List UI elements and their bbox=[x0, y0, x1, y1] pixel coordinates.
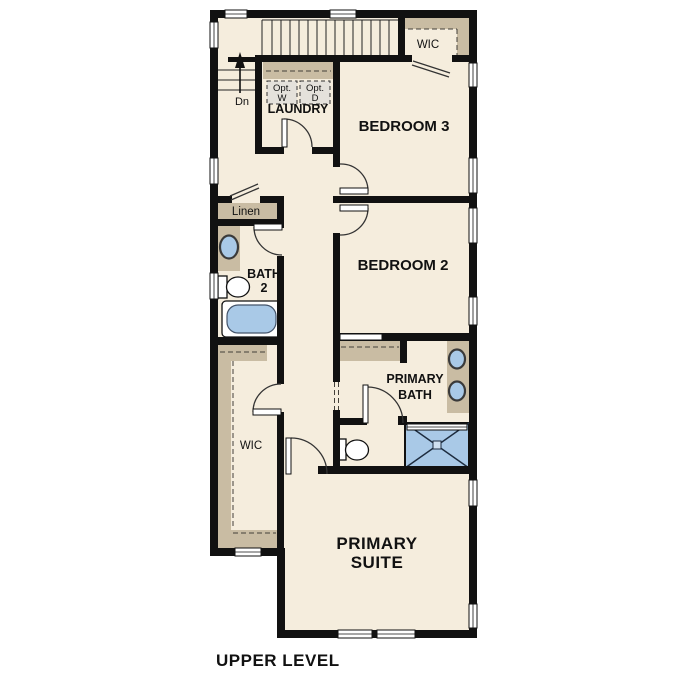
window bbox=[210, 22, 218, 48]
window bbox=[225, 10, 247, 18]
floor-plan-page: BEDROOM 3 BEDROOM 2 LAUNDRY Opt. W Opt. … bbox=[0, 0, 687, 687]
window bbox=[469, 63, 477, 87]
stairs-down-label: Dn bbox=[235, 96, 249, 108]
bedroom3-label: BEDROOM 3 bbox=[359, 118, 450, 135]
primary-bath-label-2: BATH bbox=[398, 388, 432, 402]
window bbox=[235, 548, 261, 556]
bedroom2-label: BEDROOM 2 bbox=[358, 257, 449, 274]
window bbox=[377, 630, 415, 638]
primary-sink-2 bbox=[449, 382, 465, 401]
window bbox=[469, 158, 477, 193]
primary-toilet bbox=[337, 439, 369, 460]
linen-label: Linen bbox=[232, 206, 260, 218]
bath2-label-1: BATH bbox=[247, 267, 281, 281]
window bbox=[469, 604, 477, 628]
wic-primary-label: WIC bbox=[240, 440, 262, 452]
bath2-sink bbox=[220, 236, 238, 259]
bath2-toilet bbox=[218, 276, 250, 298]
window bbox=[210, 273, 218, 299]
primary-sink-1 bbox=[449, 350, 465, 369]
window bbox=[469, 480, 477, 506]
primary-suite-label-2: SUITE bbox=[351, 553, 404, 572]
opt-washer-label-2: W bbox=[278, 93, 287, 104]
window bbox=[469, 297, 477, 325]
wic-bedroom3-label: WIC bbox=[417, 39, 439, 51]
bath2-bathtub bbox=[222, 301, 281, 337]
window bbox=[330, 10, 356, 18]
primary-shower bbox=[405, 423, 469, 468]
opt-dryer-label-2: D bbox=[312, 93, 319, 104]
bath2-label-2: 2 bbox=[261, 281, 268, 295]
floor-plan-svg: BEDROOM 3 BEDROOM 2 LAUNDRY Opt. W Opt. … bbox=[0, 0, 687, 687]
primary-bath-label-1: PRIMARY bbox=[386, 372, 444, 386]
window bbox=[469, 208, 477, 243]
plan-title: UPPER LEVEL bbox=[216, 651, 340, 670]
primary-suite-label-1: PRIMARY bbox=[336, 534, 417, 553]
window bbox=[210, 158, 218, 184]
window bbox=[338, 630, 372, 638]
laundry-label: LAUNDRY bbox=[268, 102, 329, 116]
